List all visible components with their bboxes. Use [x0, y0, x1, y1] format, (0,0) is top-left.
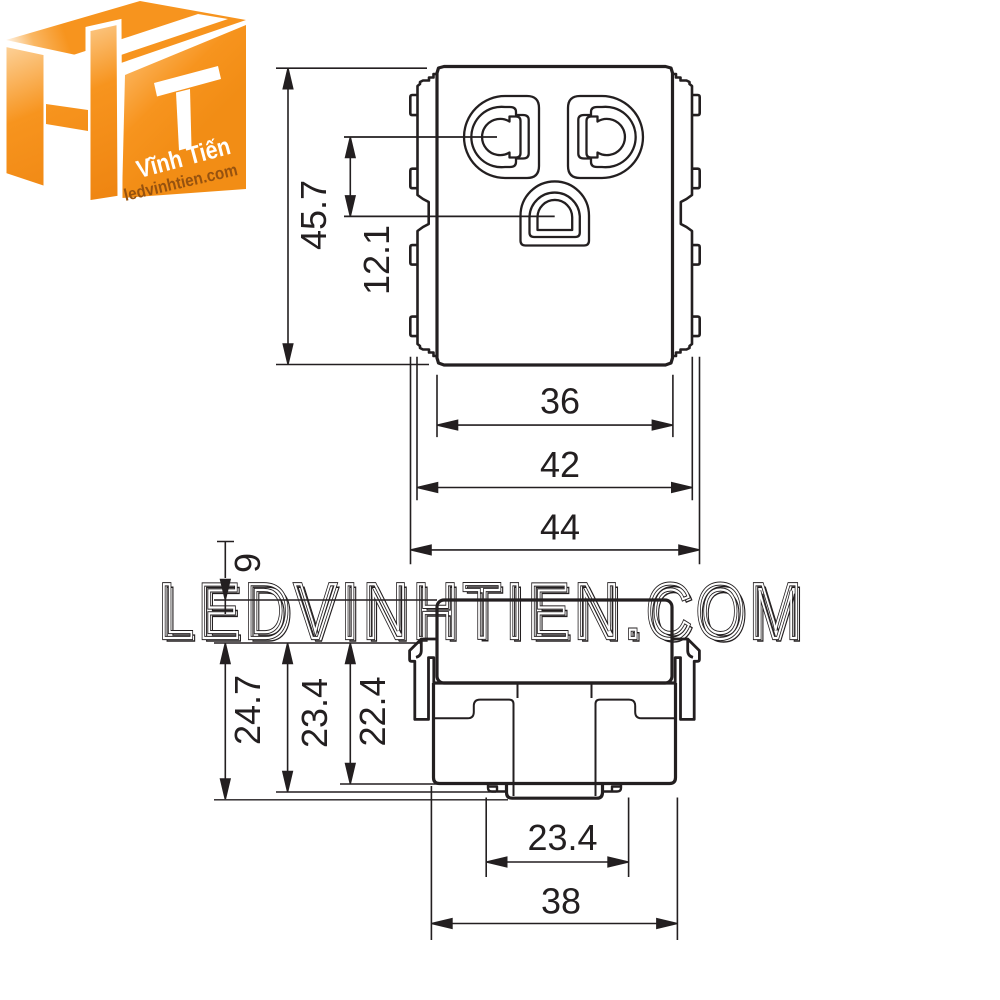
svg-text:45.7: 45.7 [293, 180, 334, 250]
svg-text:12.1: 12.1 [356, 225, 397, 295]
svg-text:24.7: 24.7 [227, 675, 268, 745]
svg-text:9: 9 [227, 553, 268, 573]
svg-text:42: 42 [540, 444, 580, 485]
svg-text:38: 38 [541, 881, 581, 922]
svg-text:36: 36 [540, 381, 580, 422]
svg-text:LEDVINHTIEN.COM: LEDVINHTIEN.COM [159, 567, 806, 654]
svg-text:23.4: 23.4 [527, 817, 597, 858]
svg-text:23.4: 23.4 [294, 678, 335, 748]
svg-text:22.4: 22.4 [352, 676, 393, 746]
svg-text:44: 44 [540, 507, 580, 548]
